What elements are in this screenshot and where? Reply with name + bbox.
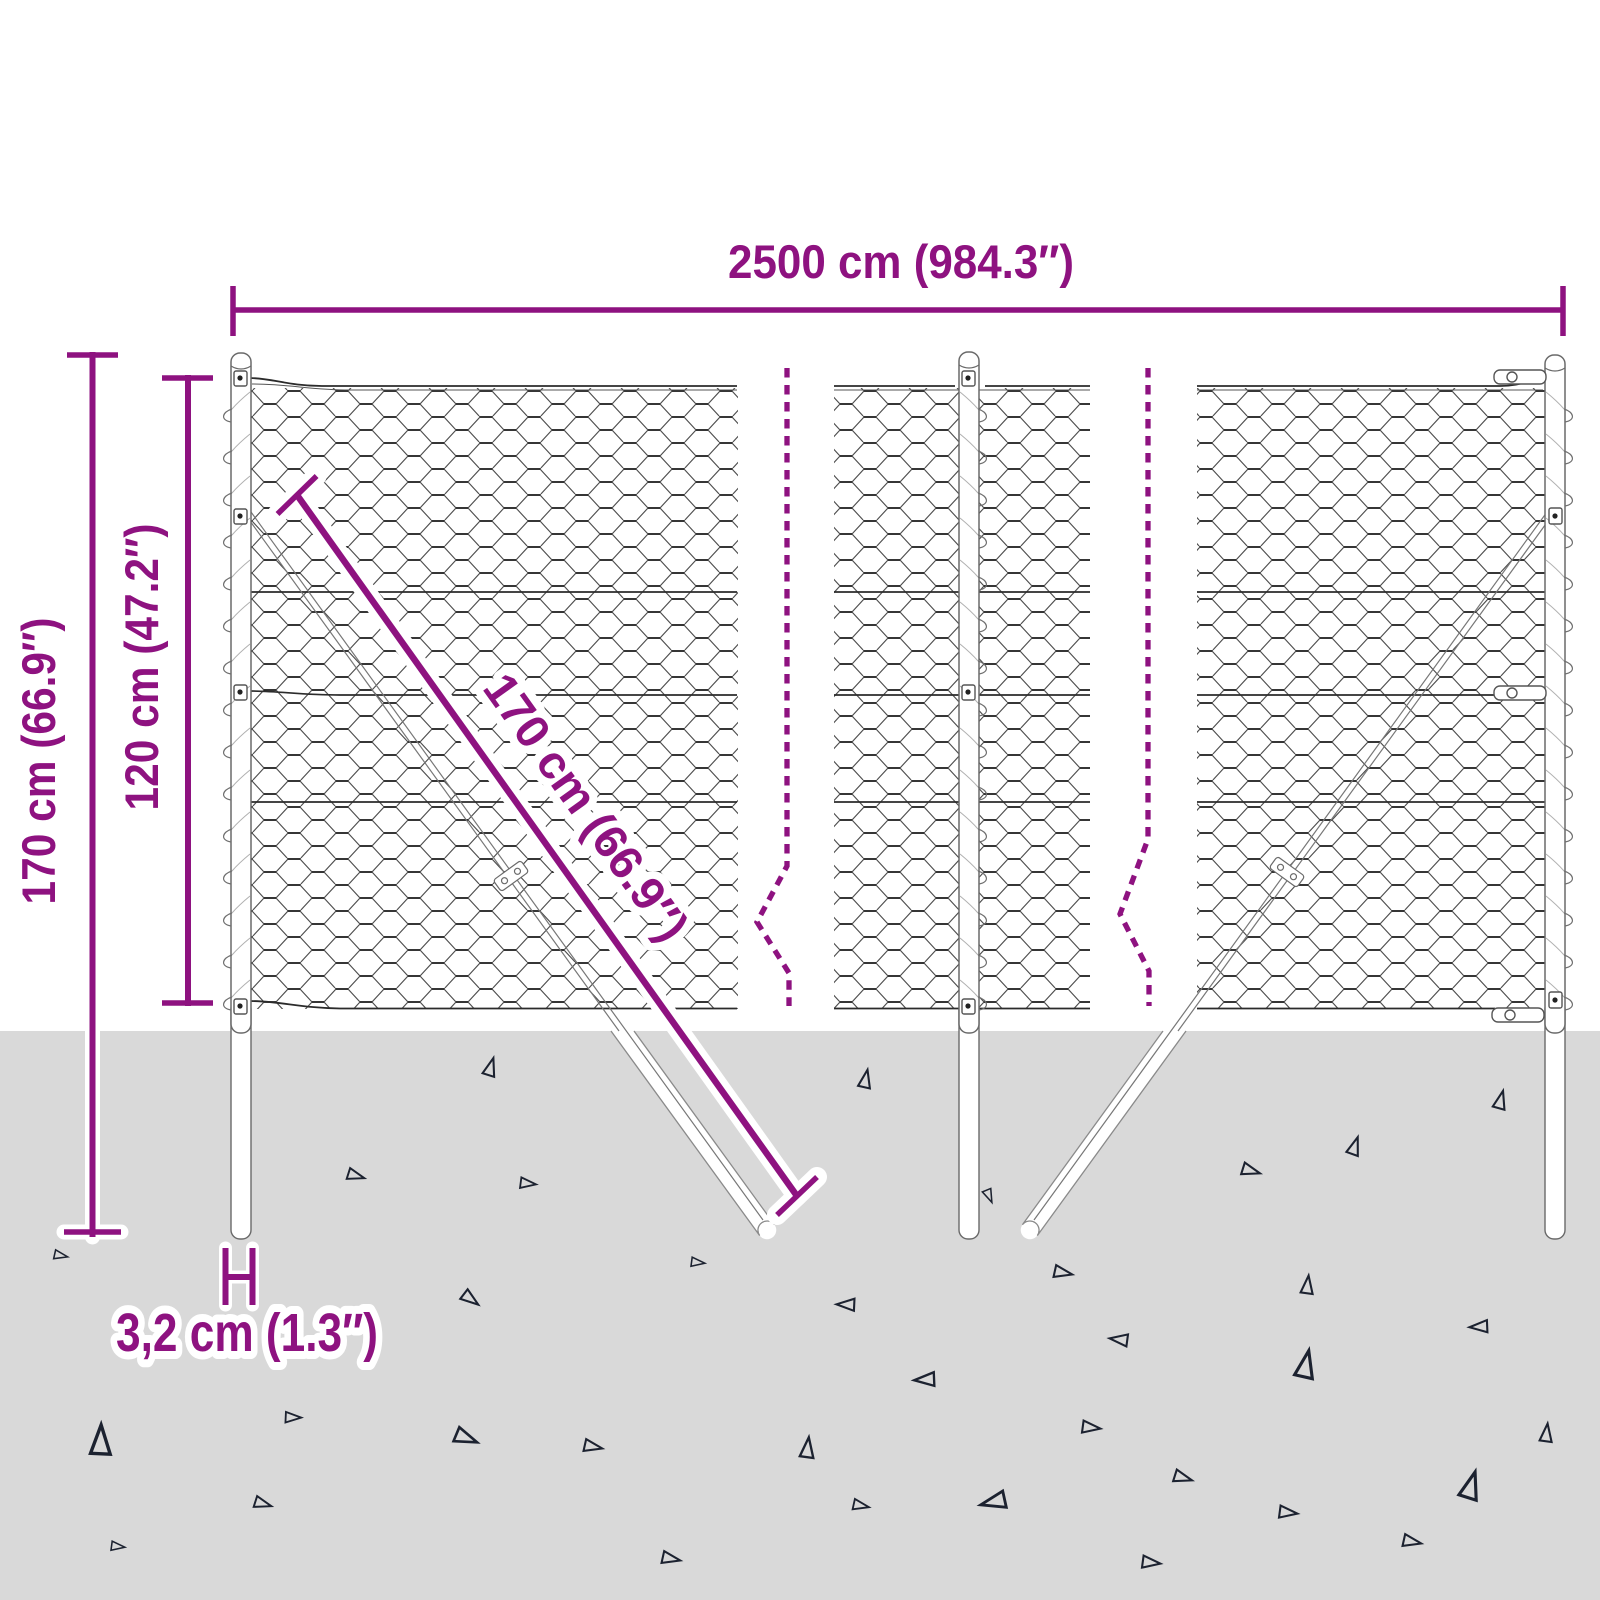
svg-text:170 cm (66.9″): 170 cm (66.9″)	[12, 618, 65, 905]
svg-text:3,2 cm (1.3″): 3,2 cm (1.3″)	[116, 1303, 378, 1363]
svg-text:120 cm (47.2″): 120 cm (47.2″)	[115, 524, 168, 811]
svg-text:2500 cm (984.3″): 2500 cm (984.3″)	[728, 235, 1074, 288]
